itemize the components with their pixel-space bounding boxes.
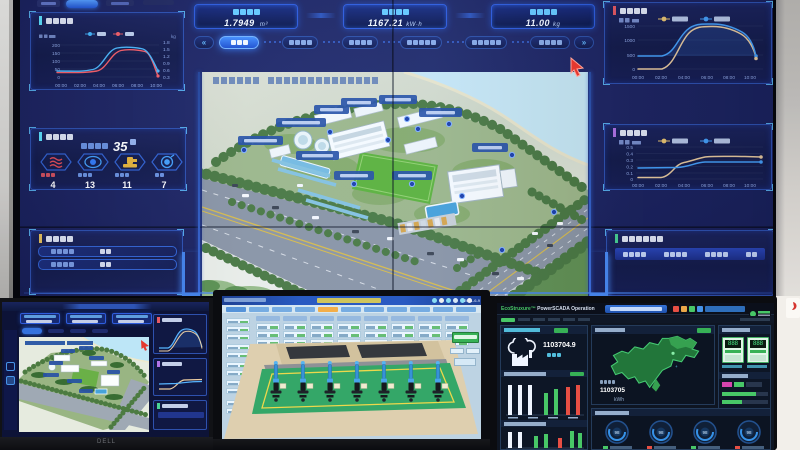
- svg-text:0.6: 0.6: [163, 68, 170, 74]
- svg-text:06:00: 06:00: [701, 183, 713, 189]
- svg-text:0.1: 0.1: [626, 171, 633, 177]
- svg-text:08:00: 08:00: [131, 83, 143, 89]
- svg-text:0.3: 0.3: [626, 158, 633, 164]
- svg-text:200: 200: [52, 43, 60, 49]
- svg-text:0: 0: [57, 75, 60, 81]
- svg-text:04:00: 04:00: [678, 75, 690, 81]
- svg-text:+: +: [675, 364, 678, 369]
- svg-text:98: 98: [702, 430, 708, 435]
- svg-text:98: 98: [614, 430, 620, 435]
- svg-text:0.9: 0.9: [163, 61, 170, 67]
- svg-text:04:00: 04:00: [678, 183, 690, 189]
- svg-text:00:00: 00:00: [632, 183, 644, 189]
- svg-text:0.3: 0.3: [163, 75, 170, 81]
- svg-text:10:00: 10:00: [744, 183, 756, 189]
- svg-text:100: 100: [52, 59, 60, 65]
- svg-text:02:00: 02:00: [655, 183, 667, 189]
- svg-text:02:00: 02:00: [655, 75, 667, 81]
- svg-text:10:00: 10:00: [744, 75, 756, 81]
- svg-text:0.2: 0.2: [626, 165, 633, 171]
- svg-text:10:00: 10:00: [150, 83, 162, 89]
- svg-text:0.5: 0.5: [626, 145, 633, 151]
- svg-text:500: 500: [627, 53, 635, 59]
- svg-text:0: 0: [632, 67, 635, 73]
- svg-text:0: 0: [630, 177, 633, 183]
- svg-text:00:00: 00:00: [55, 83, 67, 89]
- svg-text:02:00: 02:00: [74, 83, 86, 89]
- svg-text:0.4: 0.4: [626, 152, 633, 158]
- svg-text:1.5: 1.5: [163, 47, 170, 53]
- svg-text:06:00: 06:00: [701, 75, 713, 81]
- svg-text:98: 98: [658, 430, 664, 435]
- svg-text:04:00: 04:00: [93, 83, 105, 89]
- svg-text:08:00: 08:00: [723, 183, 735, 189]
- svg-text:1500: 1500: [624, 24, 635, 30]
- svg-text:98: 98: [746, 430, 752, 435]
- svg-text:08:00: 08:00: [723, 75, 735, 81]
- svg-text:00:00: 00:00: [632, 75, 644, 81]
- svg-text:1.8: 1.8: [163, 40, 170, 46]
- svg-text:06:00: 06:00: [112, 83, 124, 89]
- svg-text:1.2: 1.2: [163, 54, 170, 60]
- svg-text:1000: 1000: [624, 38, 635, 44]
- svg-text:kg: kg: [171, 34, 176, 39]
- svg-text:150: 150: [52, 51, 60, 57]
